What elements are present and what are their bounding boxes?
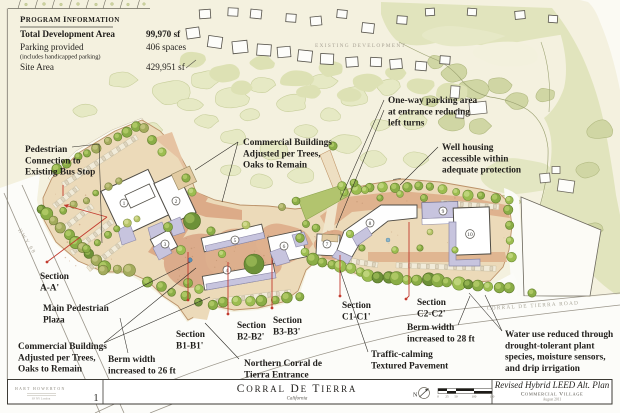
svg-text:Well housing: Well housing (442, 143, 494, 153)
svg-text:Connection to: Connection to (25, 156, 81, 166)
svg-text:Section: Section (273, 316, 303, 326)
svg-text:429,951 sf: 429,951 sf (146, 62, 186, 72)
svg-text:10: 10 (467, 232, 473, 238)
svg-text:drought-tolerant plant: drought-tolerant plant (505, 341, 595, 351)
svg-text:B2-B2': B2-B2' (237, 332, 264, 342)
svg-text:Main Pedestrian: Main Pedestrian (43, 304, 110, 314)
svg-text:Berm width: Berm width (108, 355, 156, 365)
svg-text:100: 100 (472, 395, 477, 399)
svg-text:50: 50 (454, 395, 458, 399)
svg-text:Northern Corral de: Northern Corral de (244, 359, 322, 369)
svg-text:B1-B1': B1-B1' (176, 341, 203, 351)
svg-text:Traffic-calming: Traffic-calming (371, 350, 433, 360)
svg-text:C1-C1': C1-C1' (342, 312, 370, 322)
svg-text:N: N (413, 393, 418, 399)
svg-text:Adjusted per Trees,: Adjusted per Trees, (18, 353, 96, 363)
svg-text:2: 2 (175, 199, 178, 205)
svg-text:One-way parking area: One-way parking area (388, 96, 478, 106)
svg-text:increased to 26 ft: increased to 26 ft (108, 366, 177, 376)
svg-text:406 spaces: 406 spaces (146, 42, 186, 52)
svg-text:species, moisture sensors,: species, moisture sensors, (505, 353, 606, 363)
svg-text:Section: Section (237, 321, 267, 331)
svg-text:Commercial Buildings: Commercial Buildings (18, 342, 107, 352)
svg-text:August 2011: August 2011 (543, 398, 562, 402)
svg-text:150: 150 (490, 395, 495, 399)
svg-text:Section: Section (417, 298, 447, 308)
svg-text:Commercial Buildings: Commercial Buildings (243, 138, 332, 148)
svg-text:(includes handicapped parking): (includes handicapped parking) (20, 54, 101, 61)
svg-text:9: 9 (442, 209, 445, 215)
svg-text:25: 25 (445, 395, 449, 399)
svg-text:7: 7 (326, 242, 329, 248)
svg-text:HART HOWERTON: HART HOWERTON (15, 387, 66, 391)
svg-text:Parking provided: Parking provided (20, 42, 84, 52)
svg-text:PROGRAM INFORMATION: PROGRAM INFORMATION (20, 14, 120, 24)
svg-text:increased to 28 ft: increased to 28 ft (407, 334, 476, 344)
svg-text:5: 5 (234, 238, 237, 244)
svg-text:California: California (287, 397, 308, 402)
svg-text:left turns: left turns (388, 119, 425, 129)
svg-text:Revised Hybrid LEED Alt. Plan: Revised Hybrid LEED Alt. Plan (494, 380, 610, 390)
svg-text:Section: Section (176, 330, 206, 340)
svg-text:Oaks to Remain: Oaks to Remain (243, 161, 308, 171)
svg-text:CORRAL DE TIERRA: CORRAL DE TIERRA (237, 383, 357, 395)
svg-text:Plaza: Plaza (43, 315, 65, 325)
svg-text:Oaks to Remain: Oaks to Remain (18, 365, 83, 375)
svg-text:C2-C2': C2-C2' (417, 309, 445, 319)
svg-text:Pedestrian: Pedestrian (25, 145, 68, 155)
svg-text:1: 1 (93, 393, 98, 404)
svg-text:SF NY London: SF NY London (32, 397, 51, 401)
svg-text:Textured Pavement: Textured Pavement (371, 361, 449, 371)
svg-text:adequate protection: adequate protection (442, 166, 522, 176)
svg-text:6: 6 (283, 244, 286, 250)
svg-text:A-A': A-A' (40, 283, 59, 293)
svg-text:and drip irrigation: and drip irrigation (505, 364, 581, 374)
svg-text:EXISTING DEVELOPMENT: EXISTING DEVELOPMENT (315, 43, 406, 49)
svg-text:3: 3 (164, 242, 167, 248)
svg-text:Existing Bus Stop: Existing Bus Stop (25, 168, 95, 178)
svg-text:accessible within: accessible within (442, 154, 509, 164)
svg-text:8: 8 (369, 221, 372, 227)
svg-text:Total Development Area: Total Development Area (20, 29, 115, 39)
svg-text:Adjusted per Trees,: Adjusted per Trees, (243, 149, 321, 159)
svg-text:99,970 sf: 99,970 sf (146, 29, 181, 39)
svg-text:Water use reduced through: Water use reduced through (505, 330, 614, 340)
svg-text:Tierra Entrance: Tierra Entrance (244, 370, 309, 380)
svg-text:Site Area: Site Area (20, 62, 54, 72)
svg-text:Section: Section (342, 301, 372, 311)
svg-text:1: 1 (123, 201, 126, 207)
svg-text:Berm width: Berm width (407, 323, 455, 333)
svg-text:at entrance reducing: at entrance reducing (388, 107, 470, 117)
svg-text:Section: Section (40, 272, 70, 282)
svg-text:B3-B3': B3-B3' (273, 327, 300, 337)
